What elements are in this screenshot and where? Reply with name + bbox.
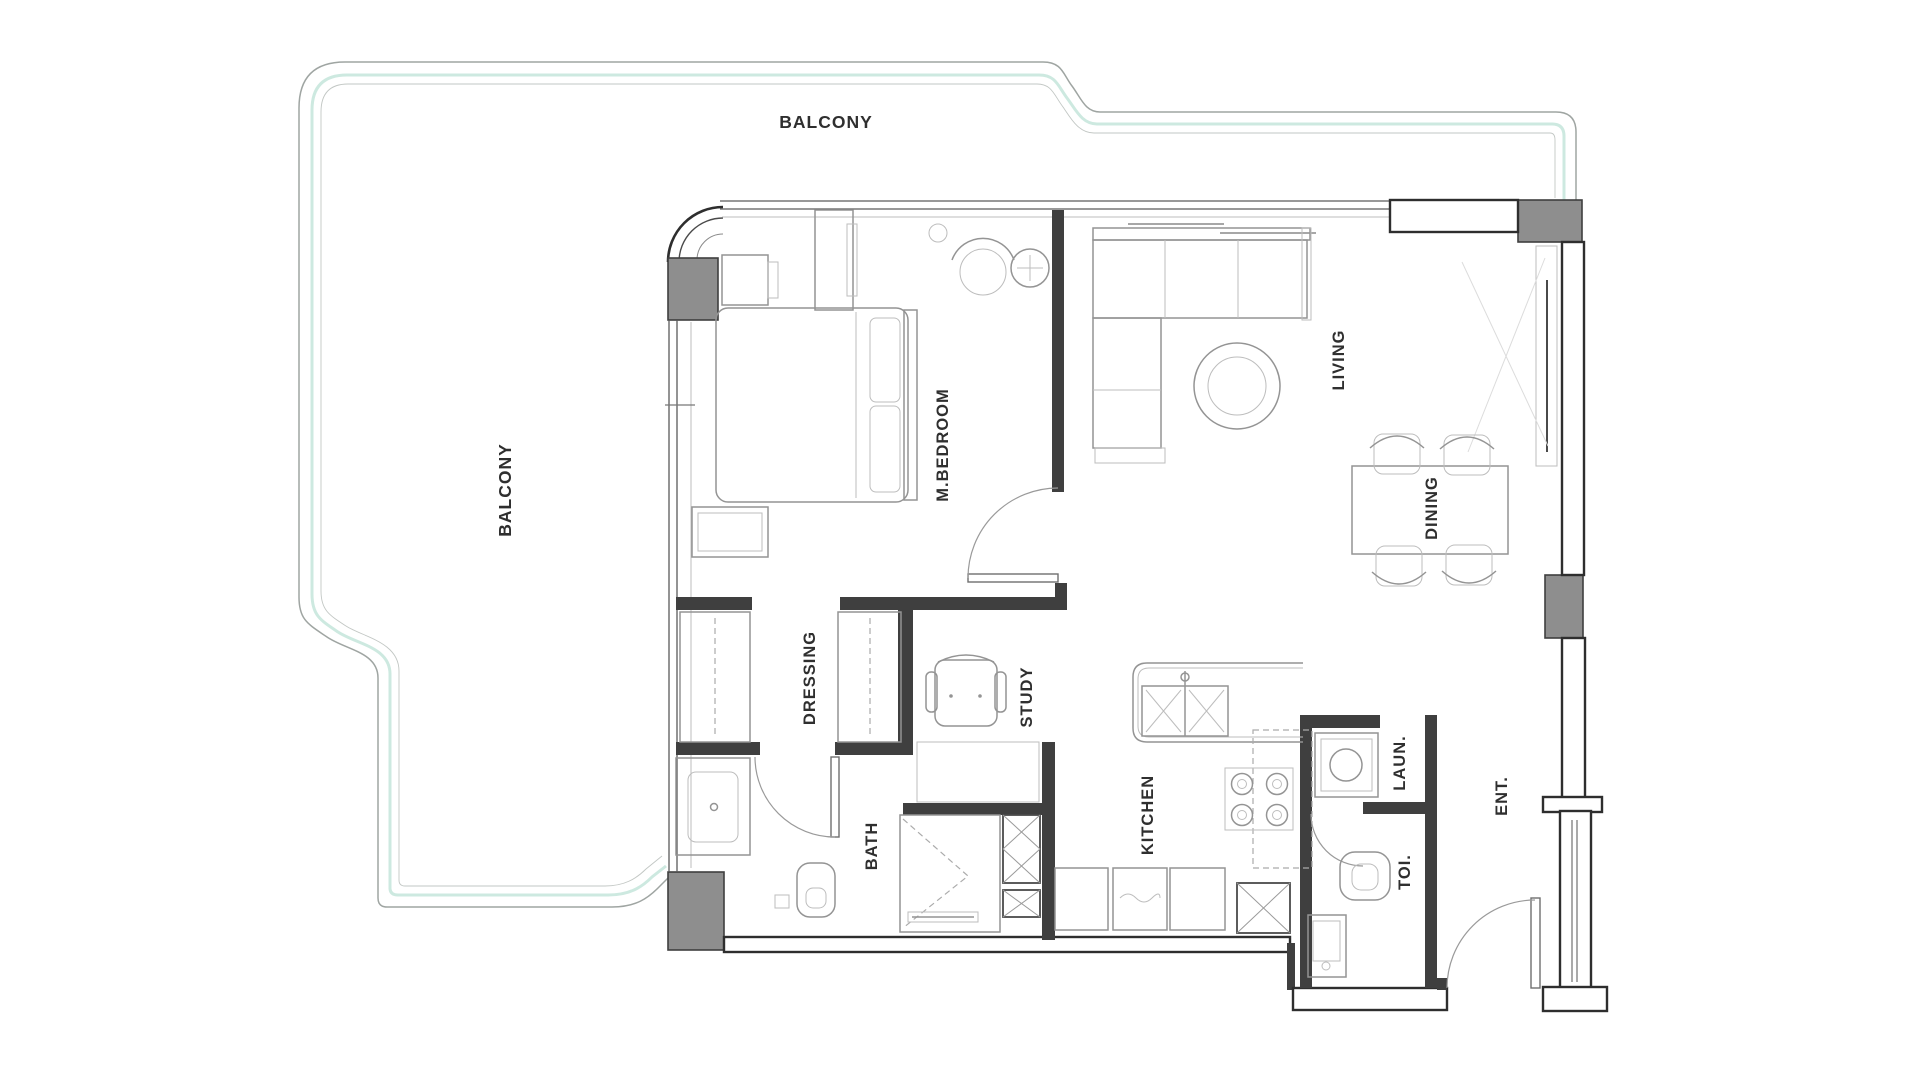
exterior-walls xyxy=(665,200,1607,1011)
study-desk xyxy=(917,742,1039,802)
label-entrance: ENT. xyxy=(1493,776,1511,816)
study-bath-wall xyxy=(903,803,1055,815)
dining-chair xyxy=(1440,435,1494,475)
bedroom-living-fin-wall xyxy=(1052,210,1064,492)
shower xyxy=(900,815,1000,932)
hall-wall xyxy=(840,597,1067,610)
flush-plate xyxy=(775,895,789,908)
laundry-toilet-divider xyxy=(1363,802,1425,814)
label-kitchen: KITCHEN xyxy=(1139,775,1157,855)
bath-kitchen-wall xyxy=(1042,742,1055,940)
label-living: LIVING xyxy=(1330,329,1348,390)
sofa-arm xyxy=(1095,448,1165,463)
service-shaft xyxy=(1003,815,1040,883)
label-dining: DINING xyxy=(1423,476,1441,540)
hall-door-arc xyxy=(968,488,1058,578)
top-right-wall xyxy=(1390,200,1518,232)
bottom-wall-right xyxy=(1293,988,1447,1010)
pillow xyxy=(870,318,900,402)
base-cabinet xyxy=(1170,868,1225,930)
washing-machine xyxy=(1315,733,1378,797)
right-wall-upper xyxy=(1562,242,1584,575)
pillow xyxy=(870,406,900,492)
label-study: STUDY xyxy=(1018,667,1036,728)
side-table xyxy=(929,224,947,242)
entrance-pilaster xyxy=(1543,797,1607,1011)
coffee-table xyxy=(1194,343,1280,429)
dressing-entry-wall xyxy=(676,597,752,610)
headboard xyxy=(904,310,917,500)
right-wall-lower xyxy=(1562,638,1585,798)
structural-column-top-right xyxy=(1518,200,1582,242)
glazing-diagonal xyxy=(1462,262,1548,446)
bath-door-arc xyxy=(755,757,835,837)
bath-fixtures xyxy=(676,758,1040,932)
nightstand xyxy=(722,255,768,305)
base-cabinet xyxy=(1055,868,1108,930)
entrance-door-arc xyxy=(1447,900,1535,988)
laundry-toilet-fixtures xyxy=(1308,733,1390,977)
laundry-block-right-wall xyxy=(1425,715,1437,988)
bottom-wall-left xyxy=(724,937,1290,952)
base-cabinet xyxy=(1113,868,1167,930)
laundry-block-top-wall xyxy=(1300,715,1380,728)
bath-top-wall-left xyxy=(676,742,760,755)
bath-vanity xyxy=(676,758,750,855)
laundry-block-left-wall xyxy=(1300,715,1312,988)
structural-column-right xyxy=(1545,575,1583,638)
label-laundry: LAUN. xyxy=(1391,735,1409,790)
label-m-bedroom: M.BEDROOM xyxy=(934,388,952,502)
floor-plan-canvas: BALCONY BALCONY M.BEDROOM LIVING DINING … xyxy=(0,0,1920,1080)
entrance-door-leaf xyxy=(1531,898,1540,988)
corner-curved-wall xyxy=(668,207,723,262)
stove-burners xyxy=(1232,774,1288,826)
bath-door-leaf xyxy=(831,757,839,837)
label-dressing: DRESSING xyxy=(801,631,819,725)
stove xyxy=(1225,768,1293,830)
hall-door-leaf xyxy=(968,574,1058,582)
faucet xyxy=(711,804,718,811)
m-bedroom-furniture xyxy=(692,210,1014,557)
sofa-chaise xyxy=(1093,318,1161,448)
tv xyxy=(847,224,857,296)
bath-toilet xyxy=(797,863,835,917)
label-bath: BATH xyxy=(863,822,881,871)
bed xyxy=(716,308,908,502)
sofa-back xyxy=(1093,228,1310,240)
structural-column-bottom-left xyxy=(668,872,724,950)
dressing-furniture xyxy=(680,612,901,742)
bath-sink xyxy=(688,772,738,842)
kitchen-fixtures xyxy=(1055,663,1312,933)
toilet-door-arc xyxy=(1311,814,1363,866)
dining-chair xyxy=(1442,545,1496,585)
bottom-step-wall xyxy=(1287,943,1295,990)
study-chair xyxy=(935,660,997,726)
label-balcony-left: BALCONY xyxy=(495,443,515,537)
glazing-diagonal xyxy=(1468,258,1545,452)
dining-chair xyxy=(1370,434,1424,474)
bed-bench xyxy=(692,507,768,557)
structural-column-top-left xyxy=(668,258,718,320)
sofa-seat xyxy=(1093,240,1307,318)
bedroom-armchair xyxy=(960,249,1006,295)
dining-chair xyxy=(1372,546,1426,586)
label-toilet: TOI. xyxy=(1396,854,1414,890)
interior-walls xyxy=(676,210,1437,988)
room-labels: BALCONY BALCONY M.BEDROOM LIVING DINING … xyxy=(495,112,1511,890)
label-balcony-top: BALCONY xyxy=(779,112,873,132)
entrance-door-jamb xyxy=(1437,978,1447,990)
toilet-wc xyxy=(1340,852,1390,900)
